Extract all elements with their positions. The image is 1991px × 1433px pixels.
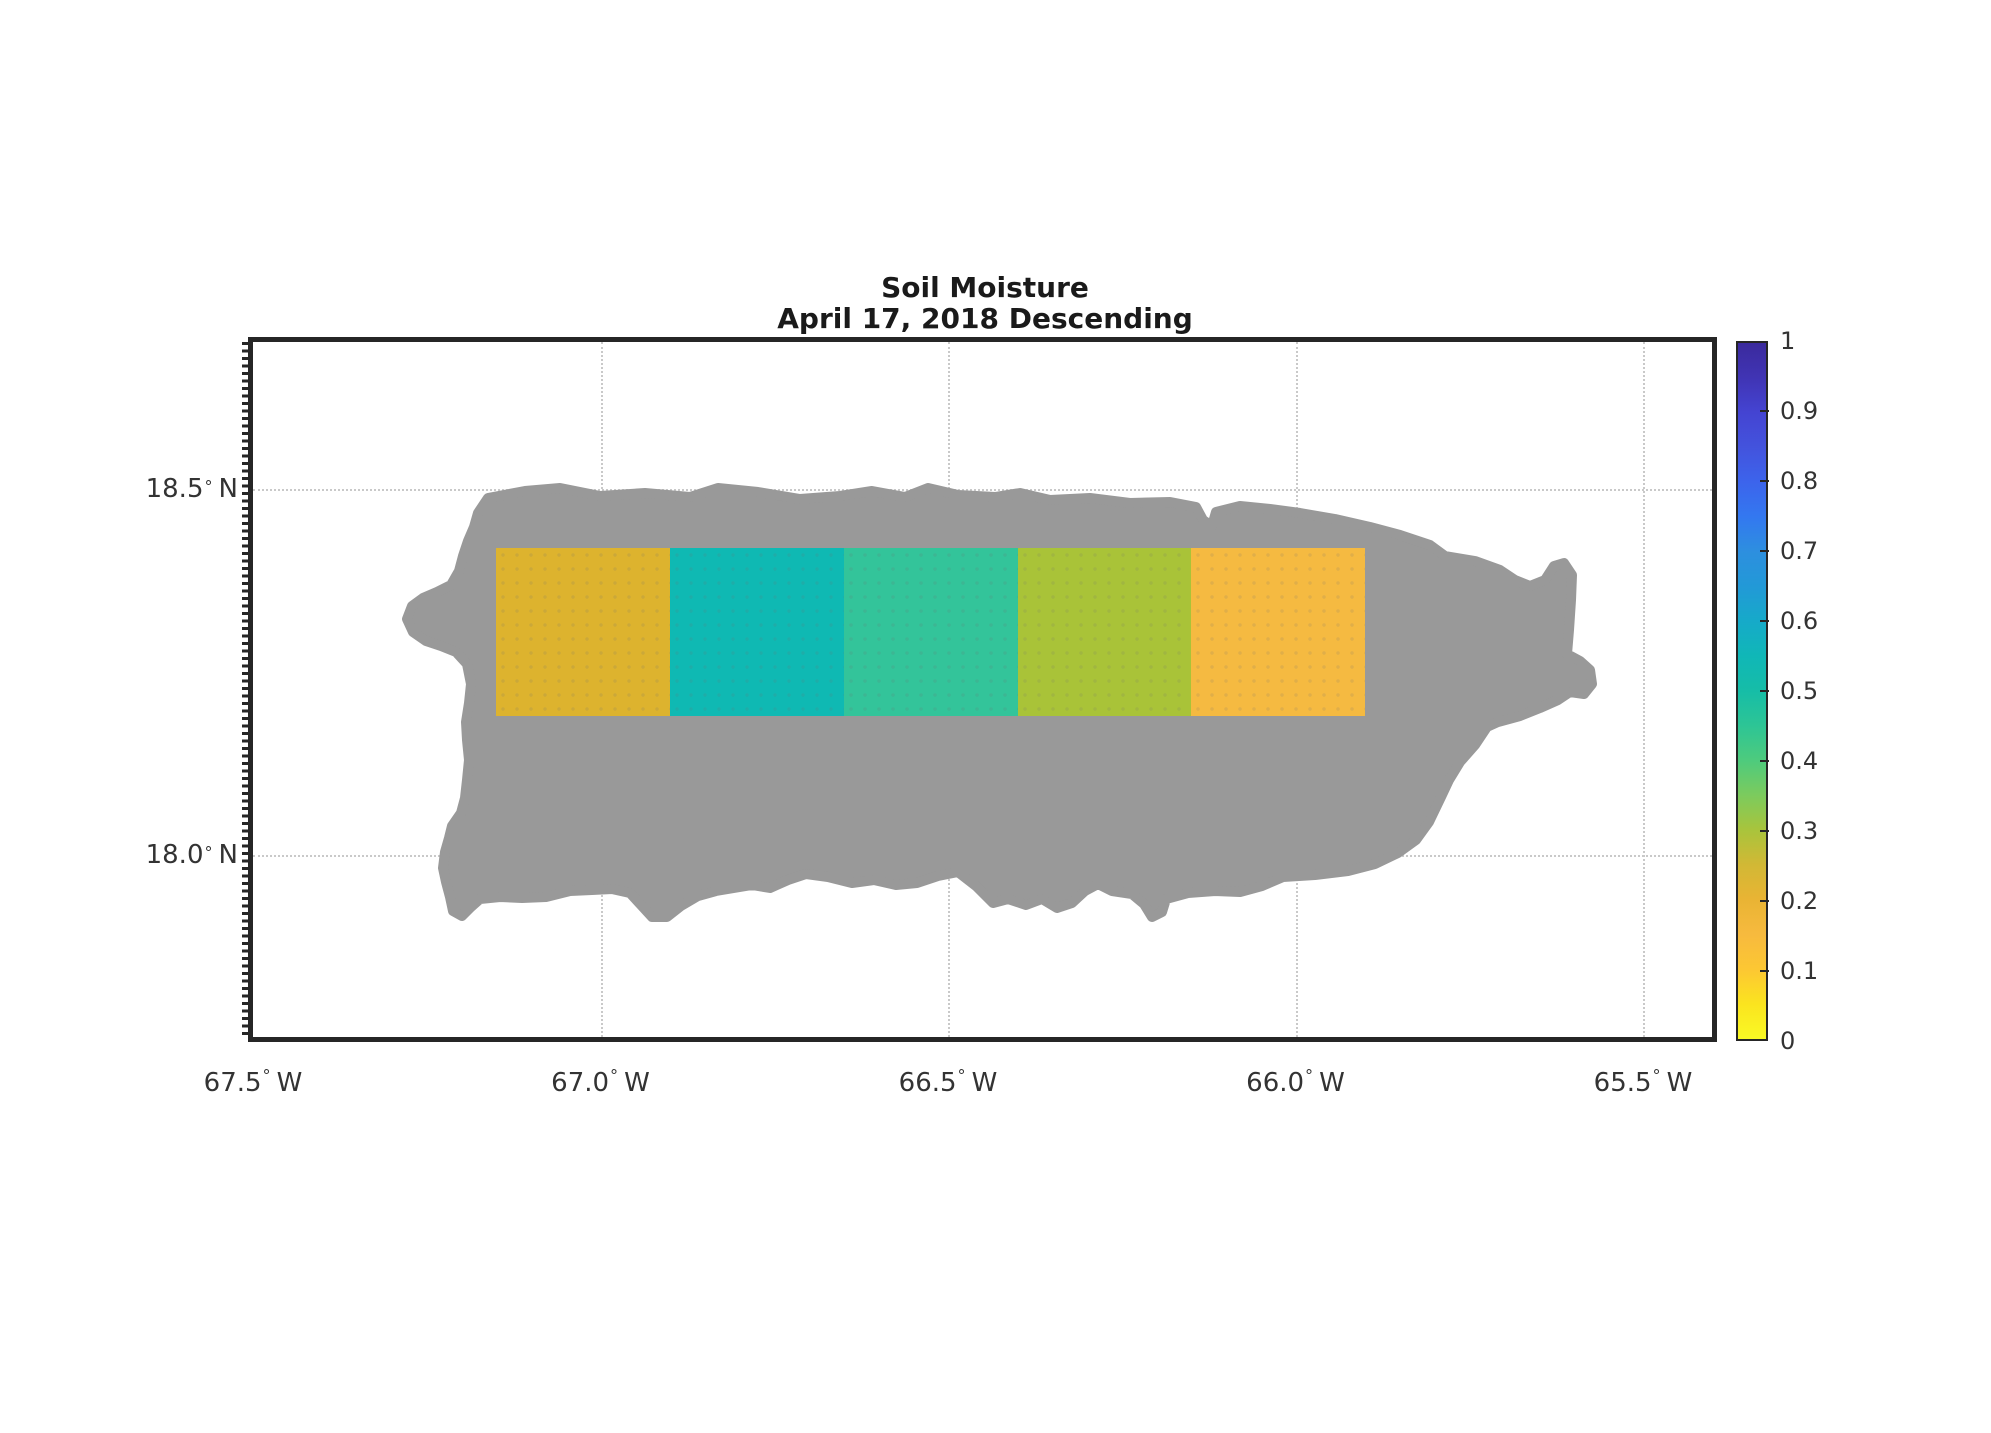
degree-symbol: °	[1305, 1066, 1313, 1085]
colorbar-label-0.2: 0.2	[1780, 887, 1818, 915]
map-plot-area	[253, 342, 1712, 1037]
soil-moisture-cell-3	[844, 548, 1018, 716]
colorbar-tick-0.8	[1760, 480, 1769, 482]
x-tick-number: 67.5	[204, 1068, 262, 1098]
soil-moisture-cell-1	[496, 548, 670, 716]
degree-symbol: °	[204, 843, 212, 862]
colorbar-tick-0.6	[1760, 620, 1769, 622]
colorbar-label-0.7: 0.7	[1780, 537, 1818, 565]
colorbar-label-0.9: 0.9	[1780, 397, 1818, 425]
left-axis-minor-ticks	[242, 342, 248, 1037]
x-tick-66.5W: 66.5°W	[848, 1068, 1048, 1098]
y-tick-number: 18.0	[146, 840, 204, 870]
degree-symbol: °	[958, 1066, 966, 1085]
x-tick-number: 66.5	[899, 1068, 957, 1098]
colorbar-tick-0.5	[1760, 690, 1769, 692]
colorbar-tick-0.4	[1760, 760, 1769, 762]
hemisphere-letter: N	[219, 474, 238, 504]
degree-symbol: °	[610, 1066, 618, 1085]
degree-symbol: °	[1653, 1066, 1661, 1085]
y-tick-18.5N: 18.5°N	[0, 473, 238, 505]
degree-symbol: °	[204, 477, 212, 496]
colorbar-label-0.6: 0.6	[1780, 607, 1818, 635]
x-tick-66.0W: 66.0°W	[1196, 1068, 1396, 1098]
hemisphere-letter: W	[972, 1068, 998, 1098]
colorbar-tick-0.3	[1760, 830, 1769, 832]
x-tick-number: 67.0	[551, 1068, 609, 1098]
colorbar-label-0.5: 0.5	[1780, 677, 1818, 705]
colorbar-tick-0.1	[1760, 970, 1769, 972]
colorbar-label-0: 0	[1780, 1027, 1795, 1055]
soil-moisture-cell-4	[1018, 548, 1192, 716]
x-tick-number: 66.0	[1246, 1068, 1304, 1098]
colorbar-label-0.1: 0.1	[1780, 957, 1818, 985]
chart-title-line2: April 17, 2018 Descending	[248, 303, 1722, 334]
colorbar-tick-0.2	[1760, 900, 1769, 902]
colorbar-label-0.4: 0.4	[1780, 747, 1818, 775]
colorbar-tick-0.9	[1760, 410, 1769, 412]
hemisphere-letter: N	[219, 840, 238, 870]
y-tick-number: 18.5	[146, 474, 204, 504]
x-tick-67.5W: 67.5°W	[153, 1068, 353, 1098]
colorbar-label-0.8: 0.8	[1780, 467, 1818, 495]
hemisphere-letter: W	[1667, 1068, 1693, 1098]
x-tick-67.0W: 67.0°W	[501, 1068, 701, 1098]
chart-title: Soil Moisture April 17, 2018 Descending	[248, 272, 1722, 334]
colorbar-tick-0.7	[1760, 550, 1769, 552]
soil-moisture-cell-5	[1191, 548, 1365, 716]
chart-title-line1: Soil Moisture	[248, 272, 1722, 303]
y-tick-18.0N: 18.0°N	[0, 839, 238, 871]
figure: Soil Moisture April 17, 2018 Descending …	[0, 0, 1991, 1433]
soil-moisture-cell-2	[670, 548, 844, 716]
hemisphere-letter: W	[277, 1068, 303, 1098]
hemisphere-letter: W	[1319, 1068, 1345, 1098]
x-tick-65.5W: 65.5°W	[1543, 1068, 1743, 1098]
hemisphere-letter: W	[624, 1068, 650, 1098]
x-tick-number: 65.5	[1594, 1068, 1652, 1098]
colorbar-label-0.3: 0.3	[1780, 817, 1818, 845]
degree-symbol: °	[263, 1066, 271, 1085]
colorbar-label-1: 1	[1780, 327, 1795, 355]
